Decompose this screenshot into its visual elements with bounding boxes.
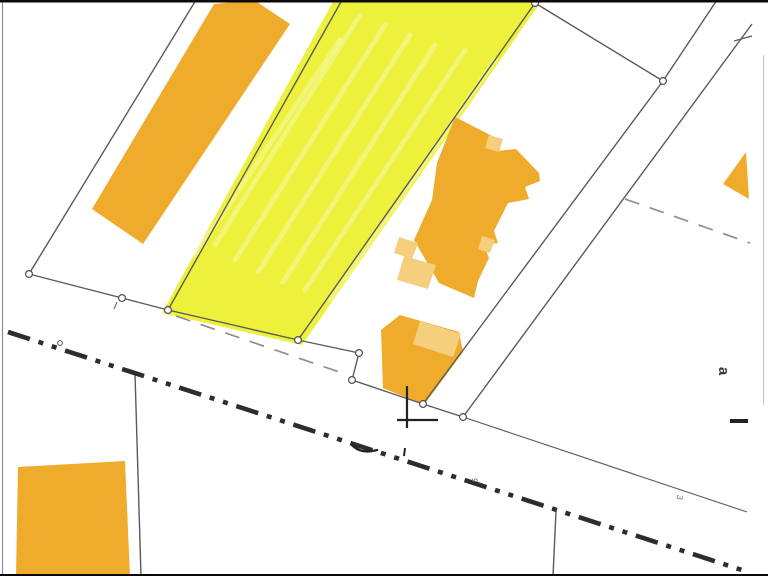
street-front-line-east [463, 417, 747, 512]
front-chain-1 [298, 340, 359, 353]
label-3: 3 [675, 494, 686, 500]
vertex-marker [420, 401, 427, 408]
street-front-line-w2 [122, 298, 168, 310]
building-corner-northeast [723, 152, 749, 199]
tick-west [114, 302, 117, 309]
building-block-southwest [16, 461, 130, 576]
vertex-marker [26, 271, 33, 278]
hidden-boundary-dashed-northeast [625, 199, 750, 243]
letterbox-top [0, 0, 768, 3]
vertex-marker [165, 307, 172, 314]
parcel-line-east [463, 24, 752, 417]
cadastral-map-canvas: a39 [0, 0, 768, 576]
vertex-marker [295, 337, 302, 344]
parcel-line-ne-to-yellow [535, 3, 663, 81]
vertex-marker [349, 377, 356, 384]
parcel-line-south-left [135, 374, 141, 576]
tick-mark [404, 448, 405, 456]
street-front-line-w1 [29, 274, 122, 298]
small-ring-marker [58, 341, 63, 346]
parcel-line-south-center [553, 511, 556, 576]
vertex-marker [119, 295, 126, 302]
label-a: a [715, 367, 732, 376]
parcel-line-ne-upper [663, 0, 717, 81]
front-chain-2 [352, 353, 359, 380]
vertex-marker [660, 78, 667, 85]
cadastral-map-viewport: a39 [0, 0, 768, 576]
front-chain-4 [423, 404, 463, 417]
vertex-marker [356, 350, 363, 357]
vertex-marker [460, 414, 467, 421]
